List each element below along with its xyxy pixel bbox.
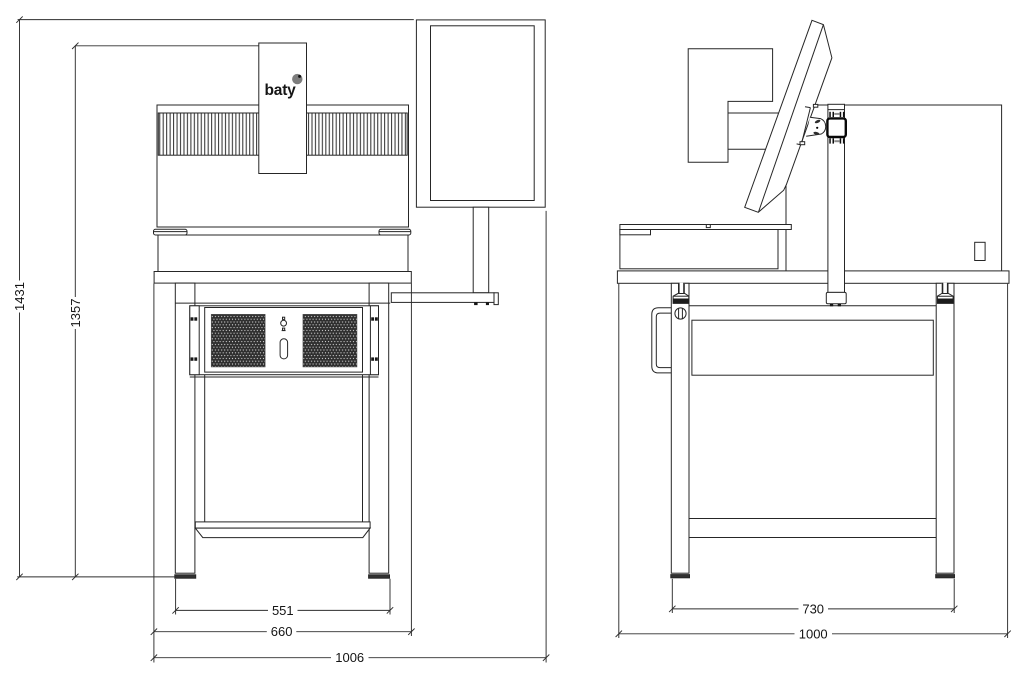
svg-text:730: 730 [802,601,824,616]
svg-text:1357: 1357 [68,299,83,328]
svg-text:1006: 1006 [335,650,364,665]
svg-text:1431: 1431 [12,282,27,311]
svg-text:660: 660 [271,624,293,639]
svg-text:551: 551 [272,603,294,618]
svg-text:1000: 1000 [799,626,828,641]
svg-text:baty: baty [265,82,297,99]
